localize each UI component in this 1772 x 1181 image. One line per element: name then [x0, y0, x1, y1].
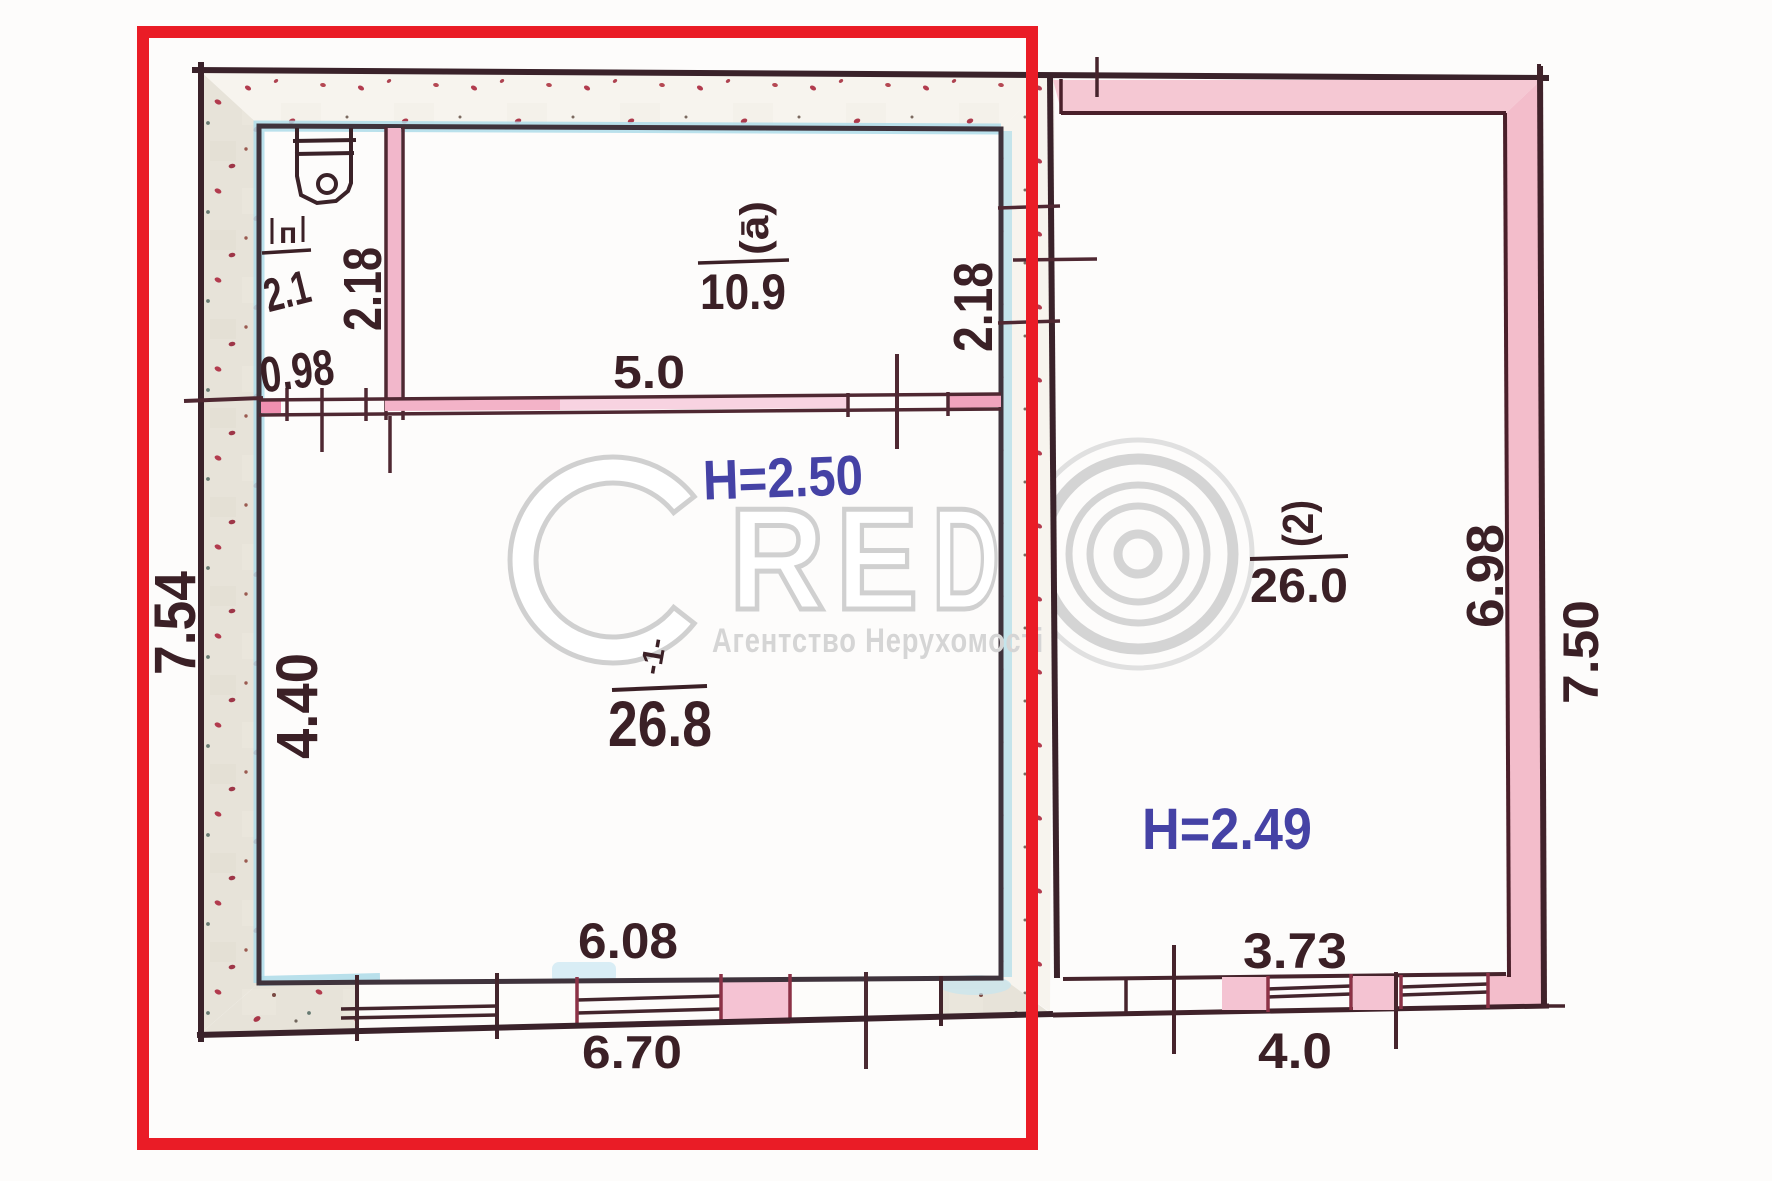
- svg-text:5.0: 5.0: [613, 346, 685, 398]
- svg-text:7.50: 7.50: [1553, 600, 1609, 704]
- svg-text:4.40: 4.40: [265, 653, 330, 759]
- svg-text:(а̄): (а̄): [733, 201, 777, 255]
- svg-text:26.0: 26.0: [1250, 560, 1348, 613]
- svg-text:6.70: 6.70: [582, 1026, 682, 1078]
- svg-text:D: D: [932, 478, 1000, 640]
- svg-text:7.54: 7.54: [143, 571, 208, 675]
- svg-text:6.98: 6.98: [1457, 524, 1515, 628]
- svg-text:10.9: 10.9: [700, 264, 786, 320]
- svg-text:4.0: 4.0: [1258, 1023, 1332, 1079]
- svg-text:6.08: 6.08: [578, 913, 678, 969]
- svg-text:Агентство Нерухомості: Агентство Нерухомості: [712, 622, 1044, 660]
- svg-text:-1-: -1-: [634, 635, 673, 677]
- svg-text:3.73: 3.73: [1243, 923, 1347, 979]
- svg-text:0.98: 0.98: [257, 339, 337, 404]
- svg-text:2.18: 2.18: [942, 262, 1004, 352]
- svg-text:H=2.49: H=2.49: [1142, 797, 1312, 862]
- svg-text:(2): (2): [1274, 500, 1323, 547]
- svg-text:H=2.50: H=2.50: [702, 443, 864, 512]
- svg-text:2.18: 2.18: [333, 247, 393, 331]
- svg-text:26.8: 26.8: [608, 688, 712, 760]
- svg-text:п: п: [279, 217, 297, 250]
